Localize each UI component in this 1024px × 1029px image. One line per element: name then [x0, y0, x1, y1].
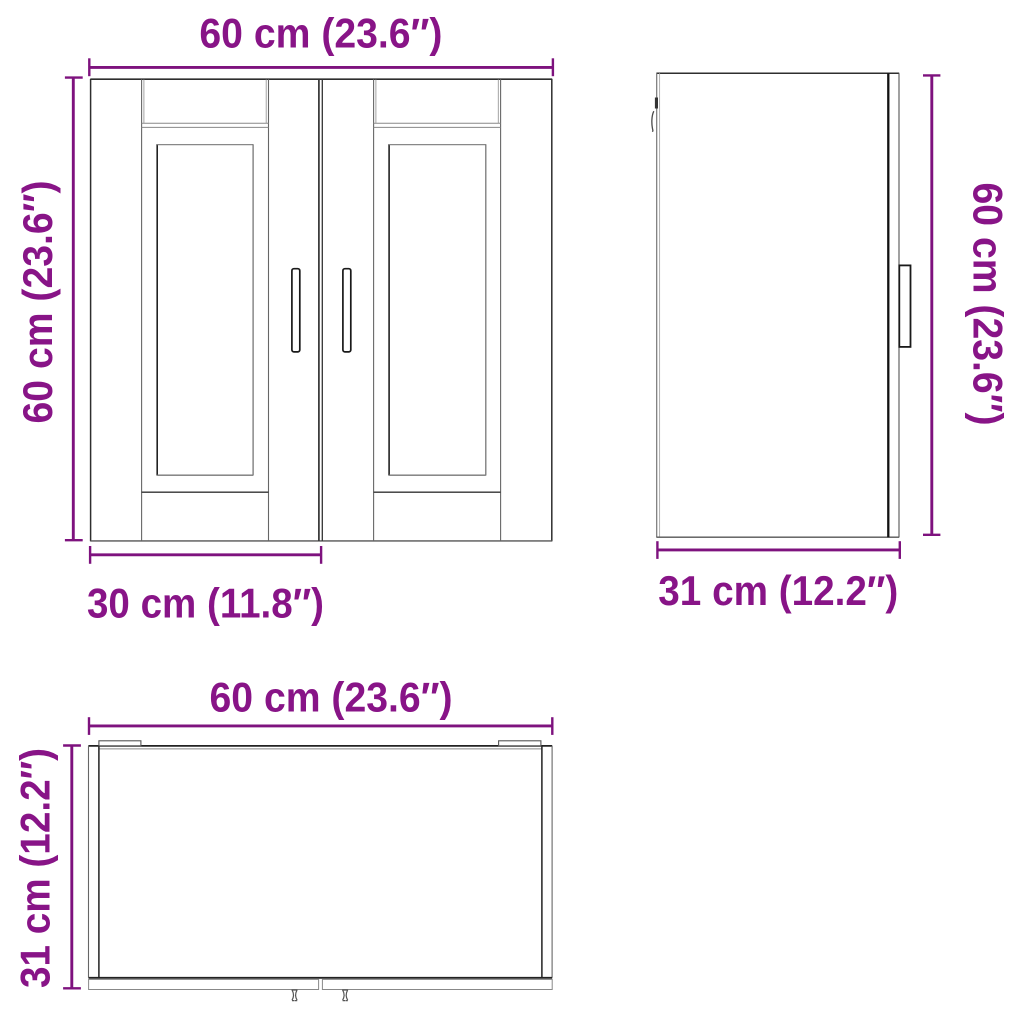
svg-text:60 cm (23.6″): 60 cm (23.6″) — [199, 9, 442, 56]
svg-text:60 cm (23.6″): 60 cm (23.6″) — [210, 673, 453, 720]
svg-text:30 cm (11.8″): 30 cm (11.8″) — [87, 579, 324, 626]
svg-text:31 cm (12.2″): 31 cm (12.2″) — [658, 567, 898, 614]
svg-text:60 cm (23.6″): 60 cm (23.6″) — [965, 183, 1012, 426]
svg-text:60 cm (23.6″): 60 cm (23.6″) — [14, 181, 61, 424]
svg-text:31 cm (12.2″): 31 cm (12.2″) — [12, 748, 59, 988]
